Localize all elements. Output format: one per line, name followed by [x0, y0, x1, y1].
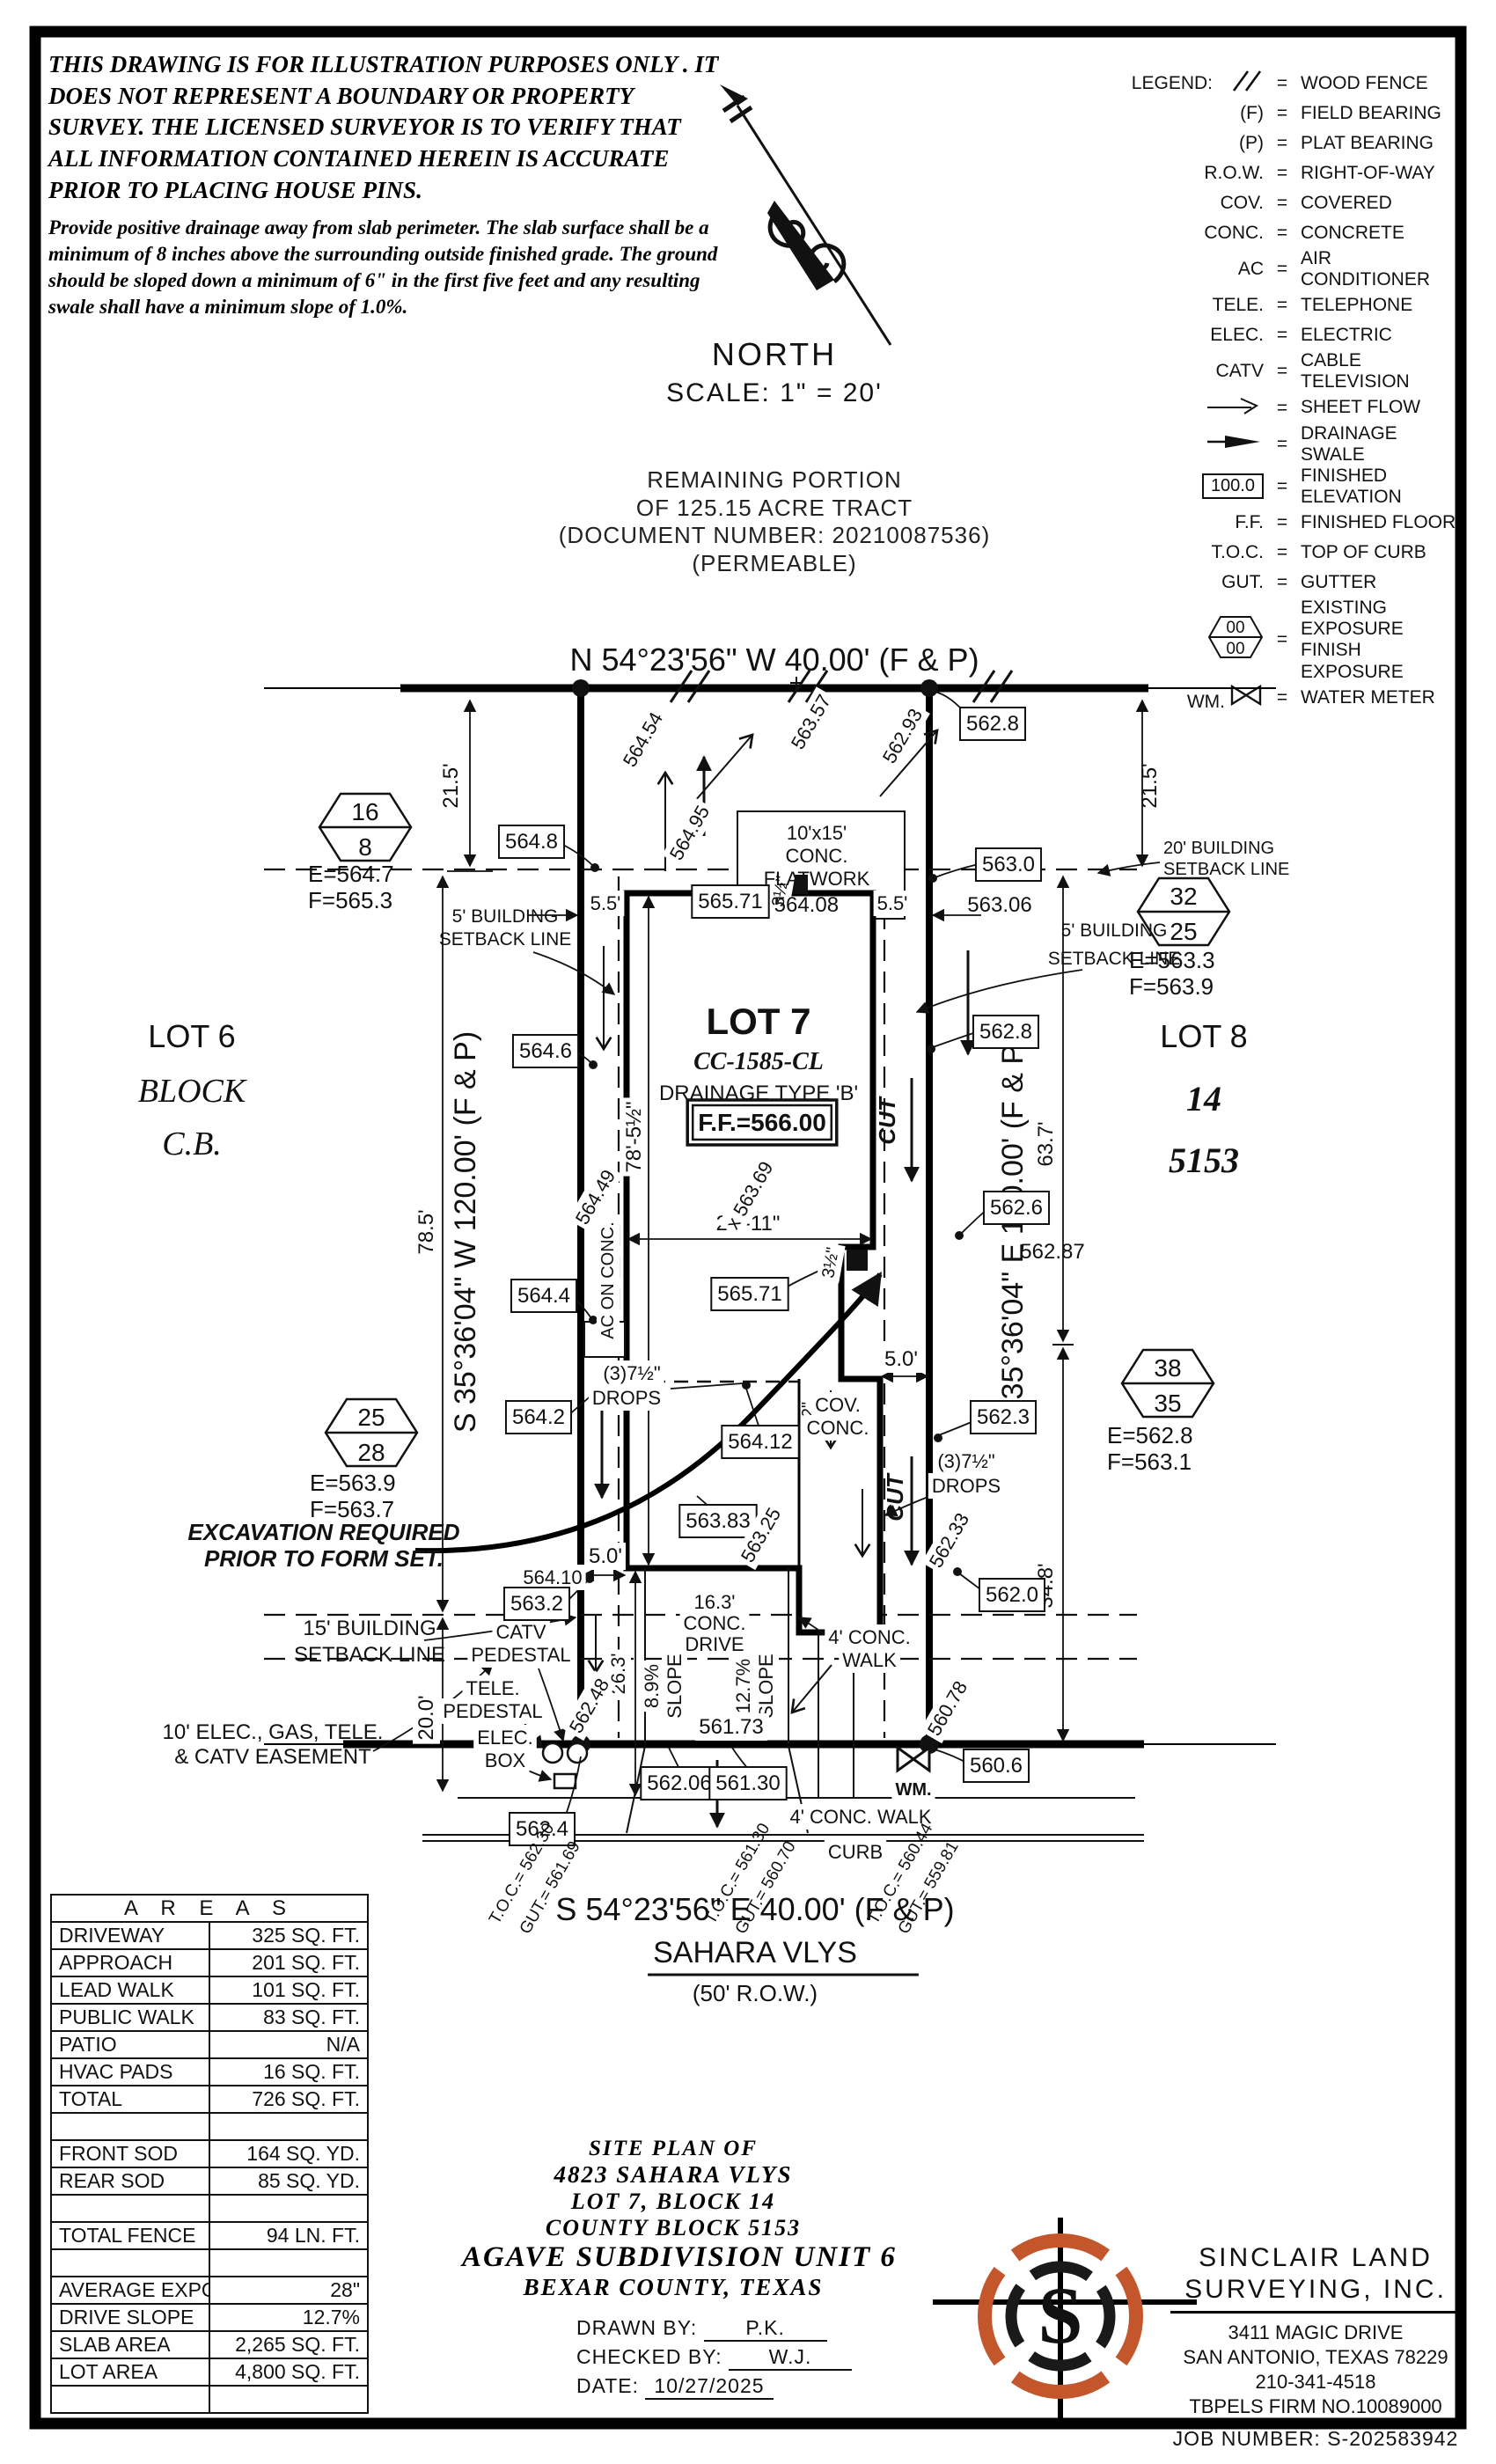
plat-label: COV. [815, 1394, 861, 1416]
plat-label: 564.12 [728, 1430, 792, 1454]
area-value: 83 SQ. FT. [209, 2004, 368, 2031]
plat-label: 563.83 [686, 1509, 750, 1533]
plat-label: FLATWORK [764, 868, 870, 890]
step-hatch [847, 1250, 868, 1271]
checked-by-value: W.J. [729, 2345, 852, 2371]
tele-pedestal-icon [543, 1743, 562, 1763]
plat-label: 5' BUILDING [1061, 920, 1168, 941]
area-value: 325 SQ. FT. [209, 1922, 368, 1949]
plat-label: F.F.=566.00 [698, 1109, 826, 1136]
areas-table-row: LEAD WALK101 SQ. FT. [51, 1976, 368, 2004]
areas-table-row: DRIVE SLOPE12.7% [51, 2304, 368, 2331]
date-value: 10/27/2025 [645, 2374, 773, 2400]
area-label [51, 2113, 209, 2140]
drawn-by-value: P.K. [704, 2316, 827, 2342]
areas-table-row [51, 2386, 368, 2413]
plat-label: 563.0 [982, 853, 1035, 876]
plat-label: LOT 6 [148, 1018, 235, 1054]
title-line: LOT 7, BLOCK 14 [462, 2189, 884, 2215]
plat-label: CONC. [807, 1417, 869, 1439]
areas-table-row: SLAB AREA2,265 SQ. FT. [51, 2331, 368, 2358]
area-label [51, 2249, 209, 2277]
plat-label: PEDESTAL [443, 1700, 542, 1722]
north-arrow-icon [720, 84, 891, 345]
area-value [209, 2386, 368, 2413]
plat-label: LOT 7 [706, 1001, 810, 1042]
areas-table-row: AVERAGE EXPOSURE28" [51, 2277, 368, 2304]
plat-label: 564.4 [517, 1284, 570, 1308]
areas-table-row: APPROACH201 SQ. FT. [51, 1949, 368, 1976]
plat-label: 563.2 [510, 1592, 563, 1616]
plat-label: 5153 [1169, 1140, 1239, 1180]
areas-table-row: FRONT SOD164 SQ. YD. [51, 2140, 368, 2167]
signature-block: DRAWN BY: P.K. CHECKED BY: W.J. DATE: 10… [576, 2313, 852, 2400]
date-label: DATE: [576, 2374, 639, 2397]
plat-label: 20' BUILDING [1163, 839, 1274, 858]
plat-label: 562.93 [878, 705, 927, 767]
plat-label: 563.57 [787, 691, 835, 753]
plat-label: 5' BUILDING [452, 906, 559, 927]
areas-table-row: DRIVEWAY325 SQ. FT. [51, 1922, 368, 1949]
plat-label: 561.73 [699, 1715, 763, 1739]
plat-label: F=563.1 [1107, 1448, 1192, 1475]
utility-symbols [543, 1743, 587, 1788]
plat-label: 38 [1154, 1354, 1181, 1382]
area-label: AVERAGE EXPOSURE [51, 2277, 209, 2304]
plat-label: PEDESTAL [471, 1644, 570, 1666]
title-line: COUNTY BLOCK 5153 [462, 2215, 884, 2241]
area-value: 2,265 SQ. FT. [209, 2331, 368, 2358]
area-label: DRIVEWAY [51, 1922, 209, 1949]
plat-label: 565.71 [717, 1282, 781, 1306]
plat-label: 8 [358, 833, 372, 861]
area-label: PATIO [51, 2031, 209, 2058]
drawn-by-label: DRAWN BY: [576, 2316, 697, 2339]
plat-label: CUT [874, 1096, 900, 1145]
areas-table-row [51, 2195, 368, 2222]
area-value: 12.7% [209, 2304, 368, 2331]
plat-label: S 35°36'04" W 120.00' (F & P) [449, 1031, 482, 1433]
plat-label: PRIOR TO FORM SET. [204, 1545, 444, 1572]
plat-label: BLOCK [138, 1073, 247, 1110]
areas-table-row: REAR SOD85 SQ. YD. [51, 2167, 368, 2195]
plat-label: 20.0' [414, 1695, 438, 1740]
plat-label: 25 [357, 1404, 385, 1431]
areas-table-title: A R E A S [51, 1895, 368, 1922]
area-value: 16 SQ. FT. [209, 2058, 368, 2086]
area-value: 101 SQ. FT. [209, 1976, 368, 2004]
plat-label: 78'-5½" [622, 1101, 646, 1172]
area-label: FRONT SOD [51, 2140, 209, 2167]
plat-label: CONC. [786, 845, 848, 867]
plat-label: DRIVE [685, 1633, 744, 1655]
plat-label: 562.8 [979, 1020, 1032, 1044]
area-value: 201 SQ. FT. [209, 1949, 368, 1976]
area-value: 726 SQ. FT. [209, 2086, 368, 2113]
firm-name-line2: SURVEYING, INC. [1170, 2274, 1461, 2306]
plat-label: E=563.9 [310, 1470, 396, 1496]
plat-label: BOX [485, 1749, 526, 1771]
area-value: 4,800 SQ. FT. [209, 2358, 368, 2386]
areas-table-block: A R E A S DRIVEWAY325 SQ. FT.APPROACH201… [50, 1894, 369, 2414]
plat-label: N 54°23'56" W 40.00' (F & P) [569, 642, 979, 678]
areas-table-row [51, 2113, 368, 2140]
plat-label: CURB [828, 1841, 883, 1863]
plat-label: CC-1585-CL [693, 1048, 824, 1075]
area-value [209, 2249, 368, 2277]
plat-label: AC ON CONC. [598, 1221, 618, 1338]
plat-label: 562.06 [647, 1771, 711, 1795]
areas-table-row: TOTAL FENCE94 LN. FT. [51, 2222, 368, 2249]
area-label: LOT AREA [51, 2358, 209, 2386]
plat-label: 5.5' [590, 892, 621, 914]
title-line: SITE PLAN OF [462, 2137, 884, 2161]
plat-label: 564.6 [519, 1039, 572, 1063]
plat-label: 564.10 [523, 1566, 582, 1588]
plat-label: 561.30 [715, 1771, 780, 1795]
plat-label: F=565.3 [308, 887, 392, 913]
areas-table-row: LOT AREA4,800 SQ. FT. [51, 2358, 368, 2386]
title-line: BEXAR COUNTY, TEXAS [462, 2274, 884, 2301]
firm-number: TBPELS FIRM NO.10089000 [1170, 2394, 1461, 2419]
area-label: APPROACH [51, 1949, 209, 1976]
plat-label: (50' R.O.W.) [693, 1980, 818, 2006]
plat-label: 562.8 [966, 712, 1019, 736]
firm-divider [1170, 2311, 1461, 2314]
plat-label: 564.95 [665, 802, 714, 864]
area-label: PUBLIC WALK [51, 2004, 209, 2031]
plat-label: 564.8 [505, 830, 558, 854]
plat-label: 10' ELEC., GAS, TELE. [163, 1720, 384, 1744]
plat-label: 16.3' [693, 1591, 735, 1613]
plat-label: 10'x15' [787, 822, 847, 844]
logo-letter: S [1038, 2270, 1082, 2360]
area-value: 85 SQ. YD. [209, 2167, 368, 2195]
plat-label: 21.5' [439, 763, 463, 808]
plat-label: 562.48 [565, 1675, 613, 1737]
plat-label: LOT 8 [1160, 1018, 1247, 1054]
plat-label: 12.7% [732, 1659, 754, 1713]
plat-label: CUT [882, 1472, 908, 1522]
checked-by-label: CHECKED BY: [576, 2345, 722, 2368]
plat-label: 562.0 [986, 1583, 1038, 1607]
area-value [209, 2195, 368, 2222]
plat-label: 32 [1170, 883, 1197, 910]
plat-label: SAHARA VLYS [653, 1936, 857, 1969]
area-value [209, 2113, 368, 2140]
area-label: DRIVE SLOPE [51, 2304, 209, 2331]
plat-label: 565.71 [698, 890, 762, 913]
areas-table-row: PUBLIC WALK83 SQ. FT. [51, 2004, 368, 2031]
water-meter-icon [898, 1748, 929, 1771]
plat-label: 562.87 [1020, 1240, 1084, 1264]
area-value: N/A [209, 2031, 368, 2058]
plat-label: 14 [1186, 1079, 1221, 1118]
area-label: TOTAL FENCE [51, 2222, 209, 2249]
plat-label: ELEC. [477, 1727, 533, 1749]
plat-label: 28 [357, 1439, 385, 1466]
areas-table: A R E A S DRIVEWAY325 SQ. FT.APPROACH201… [50, 1894, 369, 2414]
firm-block: SINCLAIR LAND SURVEYING, INC. 3411 MAGIC… [1170, 2242, 1461, 2451]
plat-label: 564.54 [619, 708, 667, 771]
plat-label: SETBACK LINE [1163, 860, 1289, 879]
plat-label: F=563.9 [1129, 973, 1214, 1000]
plat-label: SLOPE [664, 1654, 686, 1718]
areas-table-row: TOTAL726 SQ. FT. [51, 2086, 368, 2113]
area-label: LEAD WALK [51, 1976, 209, 2004]
plat-label: E=564.7 [308, 861, 394, 887]
plat-label: 562.3 [977, 1405, 1030, 1429]
plat-label: 16 [351, 798, 378, 825]
catv-pedestal-icon [568, 1743, 587, 1763]
plat-label: 21.5' [1138, 763, 1162, 808]
area-label: REAR SOD [51, 2167, 209, 2195]
plat-label: 562.6 [990, 1196, 1043, 1220]
firm-name-line1: SINCLAIR LAND [1170, 2242, 1461, 2274]
plat-label: & CATV EASEMENT [174, 1745, 371, 1769]
job-number: JOB NUMBER: S-202583942 [1170, 2427, 1461, 2451]
firm-phone: 210-341-4518 [1170, 2370, 1461, 2394]
areas-table-row [51, 2249, 368, 2277]
plat-label: TELE. [466, 1677, 519, 1699]
plat-label: WALK [842, 1649, 897, 1671]
plat-label: 4' CONC. [828, 1626, 910, 1648]
plat-label: 563.06 [967, 893, 1031, 917]
firm-address1: 3411 MAGIC DRIVE [1170, 2321, 1461, 2345]
plat-label: 25 [1170, 918, 1197, 945]
plat-label: DROPS [932, 1475, 1001, 1497]
plat-label: 560.6 [970, 1754, 1023, 1778]
plat-label: 8.9% [641, 1664, 663, 1708]
plat-label: 35 [1154, 1390, 1181, 1417]
site-plan-sheet: THIS DRAWING IS FOR ILLUSTRATION PURPOSE… [0, 0, 1496, 2464]
plat-label: 78.5' [414, 1209, 438, 1254]
plat-label: 4' CONC. WALK [789, 1806, 931, 1828]
title-block: SITE PLAN OF 4823 SAHARA VLYS LOT 7, BLO… [462, 2137, 884, 2301]
firm-logo: S [933, 2218, 1197, 2425]
plat-label: C.B. [162, 1126, 222, 1162]
plat-label: WM. [895, 1780, 931, 1800]
plat-label: 63.7' [1034, 1121, 1058, 1166]
plat-label: N 35°36'04" E 120.00' (F & P) [996, 1035, 1030, 1430]
area-value: 94 LN. FT. [209, 2222, 368, 2249]
plat-label: (3)7½" [603, 1362, 660, 1384]
plat-label: 5.5' [877, 892, 908, 914]
plat-label: SETBACK LINE [439, 929, 572, 950]
area-label: TOTAL [51, 2086, 209, 2113]
firm-address2: SAN ANTONIO, TEXAS 78229 [1170, 2345, 1461, 2370]
plat-label: 5.0' [589, 1544, 622, 1568]
plat-label: CONC. [684, 1612, 746, 1634]
plat-label: 5.0' [884, 1347, 918, 1371]
title-line: AGAVE SUBDIVISION UNIT 6 [462, 2241, 884, 2274]
area-label [51, 2386, 209, 2413]
plat-label: 15' BUILDING [303, 1617, 436, 1640]
plat-label: EXCAVATION REQUIRED [187, 1519, 459, 1545]
area-label: SLAB AREA [51, 2331, 209, 2358]
area-value: 164 SQ. YD. [209, 2140, 368, 2167]
plat-label: DROPS [592, 1387, 661, 1409]
plat-label: (3)7½" [937, 1450, 994, 1472]
elec-box-icon [554, 1774, 576, 1788]
plat-label: SETBACK LINE [1048, 949, 1181, 969]
plat-label: SETBACK LINE [294, 1643, 445, 1667]
area-value: 28" [209, 2277, 368, 2304]
plat-label: SLOPE [755, 1654, 777, 1718]
plat-label: 564.2 [512, 1405, 565, 1429]
plat-label: CATV [495, 1621, 546, 1643]
area-label: HVAC PADS [51, 2058, 209, 2086]
plat-label: E=562.8 [1107, 1422, 1193, 1448]
areas-table-row: HVAC PADS16 SQ. FT. [51, 2058, 368, 2086]
area-label [51, 2195, 209, 2222]
title-line: 4823 SAHARA VLYS [462, 2161, 884, 2189]
areas-table-row: PATION/A [51, 2031, 368, 2058]
